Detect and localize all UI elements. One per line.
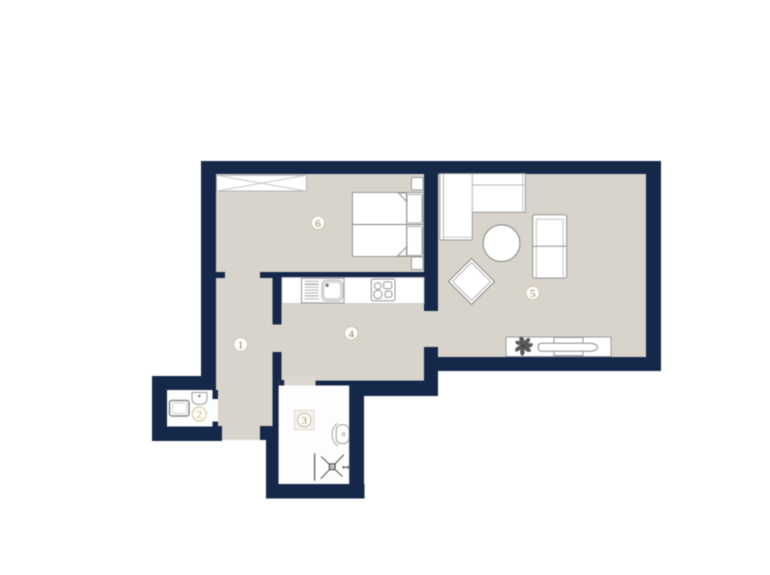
svg-text:3: 3 <box>302 415 308 427</box>
svg-text:2: 2 <box>197 409 203 421</box>
svg-text:6: 6 <box>315 218 321 230</box>
svg-text:4: 4 <box>348 328 354 340</box>
svg-text:5: 5 <box>530 288 536 300</box>
svg-text:1: 1 <box>238 340 244 352</box>
